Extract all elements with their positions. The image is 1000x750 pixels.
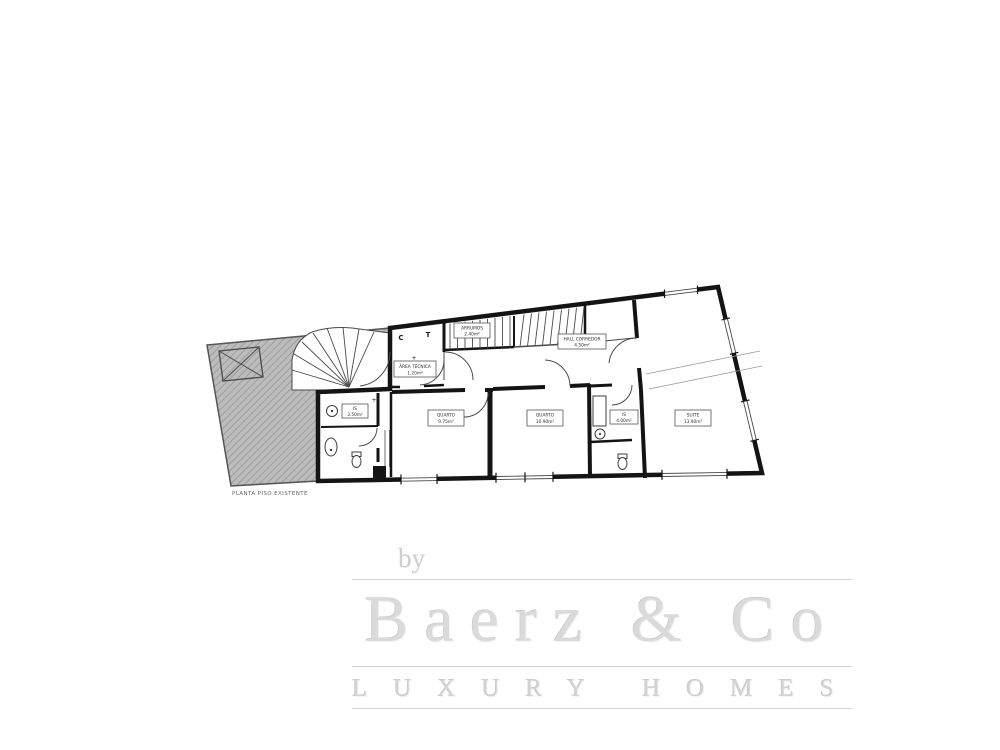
marker-plus-2: +: [371, 397, 376, 404]
sink-icon: [327, 406, 338, 417]
svg-text:4.50m²: 4.50m²: [574, 343, 590, 349]
svg-text:10.90m²: 10.90m²: [536, 419, 554, 425]
svg-text:QUARTO: QUARTO: [437, 413, 456, 419]
window-quarto-2: [496, 472, 553, 483]
svg-text:4.00m²: 4.00m²: [616, 418, 632, 424]
svg-text:3.50m²: 3.50m²: [347, 412, 363, 418]
room-label-quarto-1: QUARTO 9.75m²: [428, 410, 464, 426]
threshold-block: [373, 466, 386, 479]
marker-c: C: [398, 334, 403, 342]
svg-text:2.40m²: 2.40m²: [464, 332, 480, 338]
svg-text:SUITE: SUITE: [687, 413, 700, 419]
toilet-icon-2: [618, 454, 627, 470]
room-label-suite: SUITE 13.90m²: [675, 410, 711, 426]
bathtub-basin-icon: [325, 438, 337, 456]
room-label-is-1: IS 3.50m²: [342, 404, 368, 418]
watermark-by: by: [398, 545, 852, 572]
room-label-arrumos: ARRUMOS 2.40m²: [454, 323, 490, 338]
sink-icon-2: [595, 429, 605, 439]
svg-text:13.90m²: 13.90m²: [684, 419, 702, 425]
watermark-divider-middle: [352, 666, 852, 667]
svg-text:QUARTO: QUARTO: [536, 413, 555, 419]
watermark-tagline: LUXURY HOMES: [352, 676, 852, 701]
window-quarto-1: [401, 474, 437, 485]
room-label-hall: HALL CORREDOR 4.50m²: [558, 334, 606, 349]
room-label-is-2: IS 4.00m²: [610, 410, 638, 424]
plan-caption: PLANTA PISO EXISTENTE: [232, 491, 308, 497]
marker-t: T: [426, 331, 431, 339]
watermark: by Baerz & Co LUXURY HOMES: [352, 545, 852, 709]
toilet-icon: [352, 452, 361, 468]
watermark-divider-bottom: [352, 708, 852, 709]
room-label-quarto-2: QUARTO 10.90m²: [527, 410, 563, 426]
svg-text:ARRUMOS: ARRUMOS: [461, 326, 483, 332]
svg-text:1.20m²: 1.20m²: [407, 371, 423, 377]
svg-text:IS: IS: [622, 412, 626, 418]
window-suite-bottom: [662, 469, 727, 480]
svg-text:HALL CORREDOR: HALL CORREDOR: [563, 337, 600, 343]
svg-text:IS: IS: [353, 406, 357, 412]
shower-icon: [593, 396, 606, 426]
room-label-area-tecnica: ÁREA TÉCNICA 1.20m²: [394, 361, 436, 377]
watermark-brand: Baerz & Co: [352, 580, 852, 659]
screenshot-canvas: C T + + ÁREA TÉCNICA 1.20m² ARRUMOS 2.40…: [0, 0, 1000, 750]
svg-text:9.75m²: 9.75m²: [438, 419, 454, 425]
